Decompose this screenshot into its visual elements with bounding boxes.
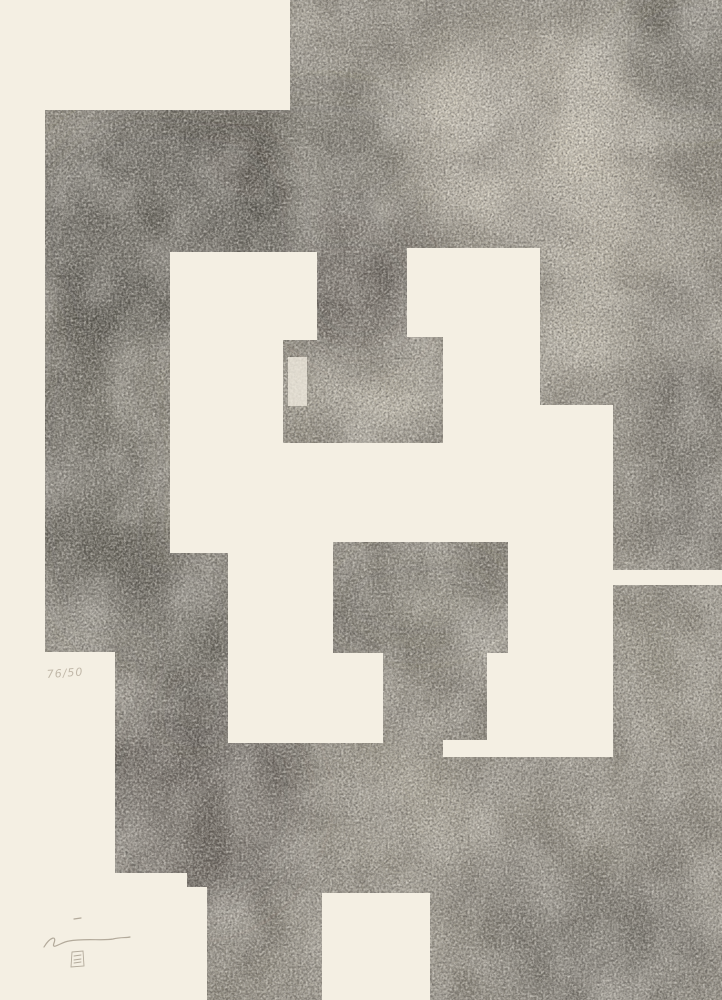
white-shape-top-right-block-lower: [443, 337, 540, 405]
edition-number: 76/50: [46, 665, 84, 681]
artwork-print: 76/50: [0, 0, 722, 1000]
artwork-canvas: 76/50: [0, 0, 722, 1000]
white-shape-bottom-center: [322, 893, 430, 1000]
white-notch-center-block: [288, 357, 307, 406]
white-shape-top-right-block: [407, 248, 540, 337]
white-shape-left-column-top: [283, 252, 317, 340]
white-shape-right-column-foot: [443, 740, 613, 757]
white-slit-right-edge: [608, 570, 722, 585]
white-shape-lower-left-foot: [228, 653, 383, 743]
white-shape-right-column: [508, 405, 613, 757]
